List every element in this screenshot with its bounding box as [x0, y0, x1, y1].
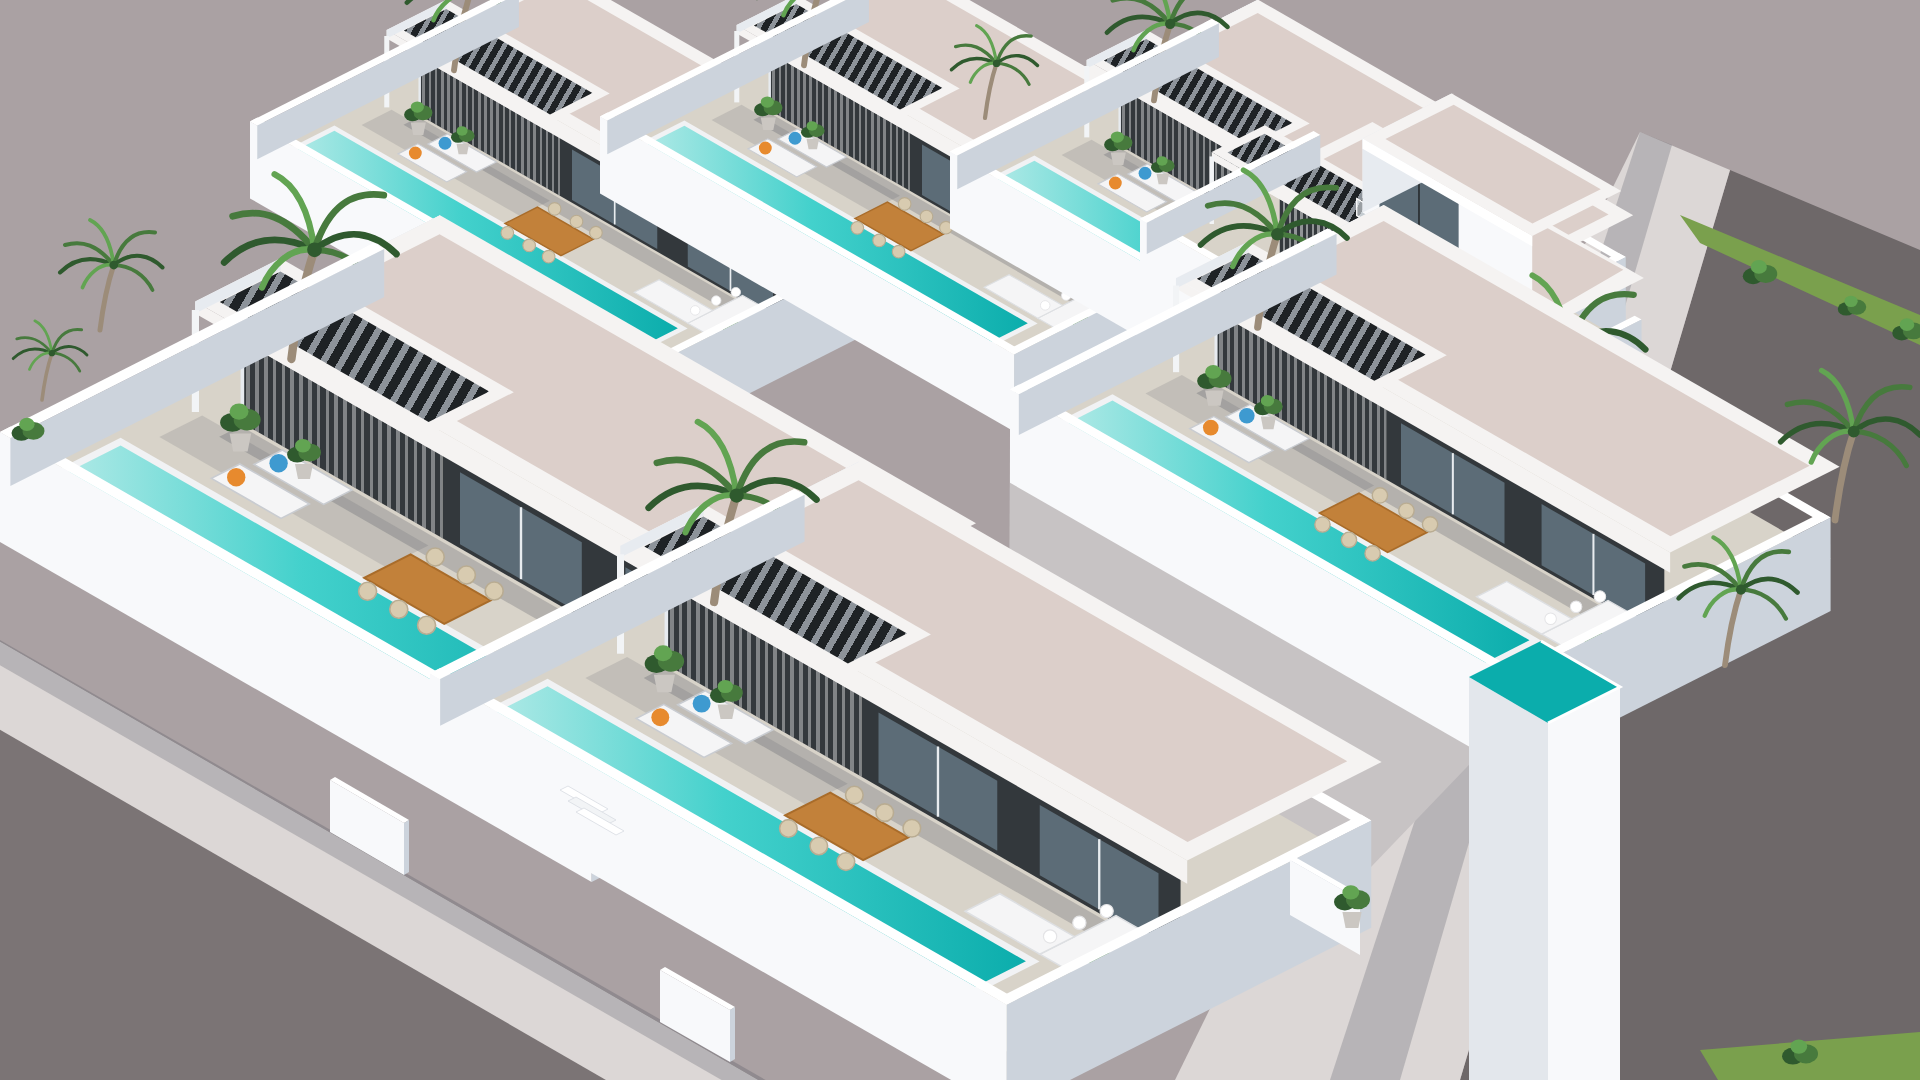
gate-side-face [404, 820, 409, 875]
render-stage [0, 0, 1920, 1080]
elevated-pool-end [1469, 641, 1620, 1080]
scene-root [0, 0, 1920, 1080]
gate-side-face [730, 1007, 735, 1062]
pool-box-front-face [1548, 687, 1620, 1080]
pool-box-side-face [1469, 677, 1548, 1080]
